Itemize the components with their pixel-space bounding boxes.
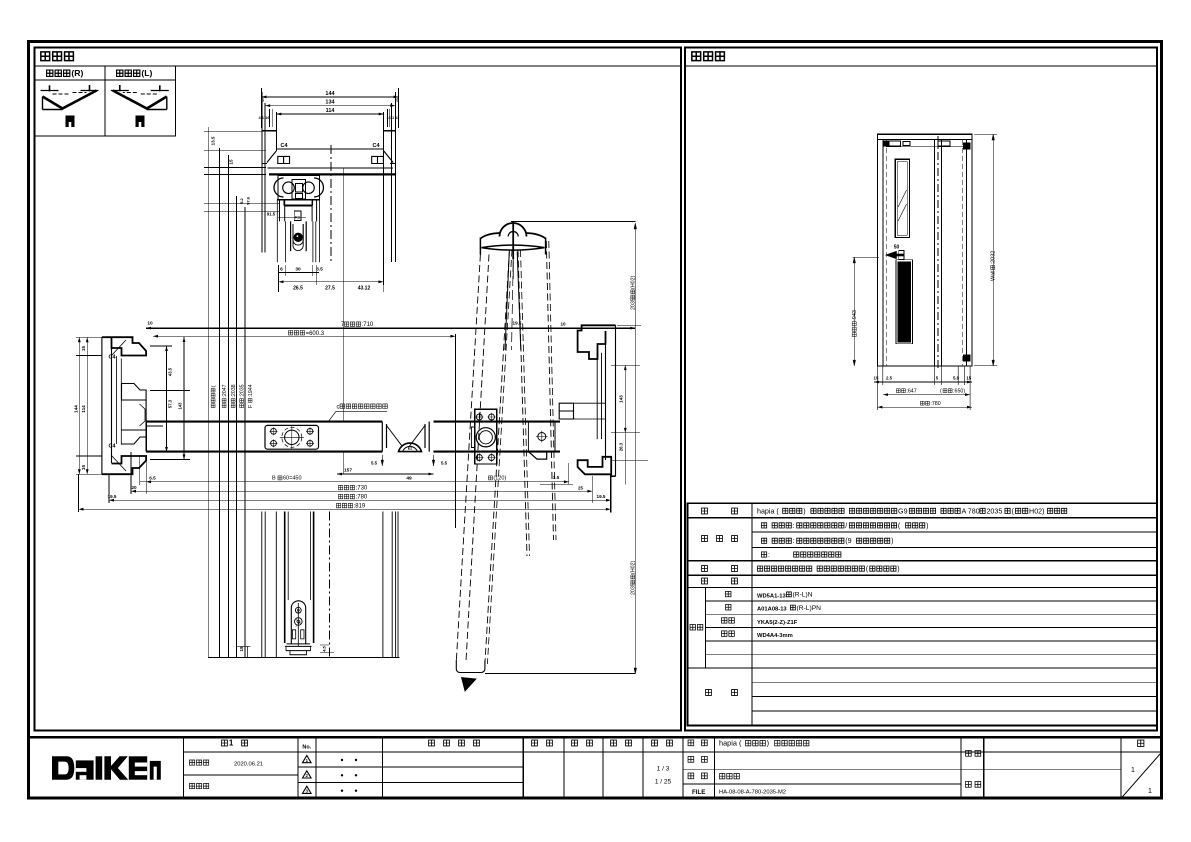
svg-text:c: c	[337, 403, 340, 410]
svg-text:A01A08-13: A01A08-13	[757, 607, 787, 613]
svg-text:15: 15	[874, 376, 879, 381]
svg-text:): )	[803, 507, 805, 515]
svg-text::1944: :1944	[248, 384, 254, 397]
svg-text:(: (	[940, 388, 942, 394]
svg-text:FILE: FILE	[692, 789, 705, 796]
svg-text:HA-08-08-A-780-2035-M2: HA-08-08-A-780-2035-M2	[719, 790, 786, 796]
svg-text:2.5: 2.5	[886, 376, 893, 381]
svg-text:): )	[926, 522, 928, 530]
svg-text::650): :650)	[953, 388, 965, 394]
svg-text:1 / 25: 1 / 25	[655, 779, 672, 786]
svg-text:49: 49	[406, 476, 412, 482]
svg-text::819: :819	[354, 504, 366, 510]
svg-text:2020.06.21: 2020.06.21	[234, 761, 263, 767]
svg-text:(9: (9	[845, 537, 851, 545]
svg-text:5.2: 5.2	[239, 197, 244, 203]
svg-text:1: 1	[1148, 788, 1152, 795]
svg-text:144: 144	[73, 405, 78, 413]
svg-text:50: 50	[894, 245, 900, 251]
svg-text::780: :780	[356, 495, 368, 501]
svg-text:B: B	[272, 476, 276, 482]
svg-text::2038: :2038	[231, 384, 237, 397]
svg-text:5.5: 5.5	[371, 461, 378, 466]
svg-text:26.3: 26.3	[619, 442, 624, 451]
svg-text:16 1 4: 16 1 4	[386, 115, 398, 120]
svg-text:(R-L)N: (R-L)N	[793, 592, 813, 599]
svg-text::710: :710	[362, 322, 374, 328]
svg-text:): )	[897, 565, 899, 573]
svg-text:144: 144	[325, 91, 335, 97]
svg-text:4.5: 4.5	[322, 645, 327, 651]
svg-text:G9: G9	[898, 507, 908, 515]
svg-text:C4: C4	[108, 355, 116, 361]
svg-text:3.5: 3.5	[316, 267, 323, 273]
svg-text:2035: 2035	[986, 507, 1002, 515]
svg-text:91.5: 91.5	[267, 212, 276, 217]
svg-text:10: 10	[560, 322, 566, 327]
svg-text:/: /	[845, 522, 847, 530]
svg-text:(H02): (H02)	[631, 560, 637, 573]
svg-text:57.3: 57.3	[168, 399, 173, 408]
svg-text::2047: :2047	[222, 384, 228, 397]
svg-text:C4: C4	[280, 143, 288, 149]
svg-text:15: 15	[229, 159, 234, 165]
svg-text:5.5: 5.5	[441, 461, 448, 466]
svg-text:2035: 2035	[631, 583, 637, 595]
svg-text:1 / 3: 1 / 3	[657, 766, 670, 773]
svg-text::647: :647	[906, 388, 916, 394]
svg-text:E2: E2	[408, 447, 412, 451]
svg-text:143: 143	[178, 402, 183, 410]
svg-text:134: 134	[325, 100, 335, 106]
svg-text:157: 157	[344, 468, 352, 474]
svg-text:57.8: 57.8	[246, 196, 251, 205]
svg-text:2035: 2035	[631, 298, 637, 310]
svg-text:): )	[767, 739, 769, 748]
svg-text:25: 25	[578, 486, 583, 491]
svg-text:26.5: 26.5	[293, 286, 303, 292]
svg-text:hapia (: hapia (	[757, 507, 779, 515]
svg-text:=600.3: =600.3	[306, 331, 325, 337]
svg-text:WD5A1-13: WD5A1-13	[757, 594, 786, 600]
svg-text:(R): (R)	[71, 68, 83, 78]
svg-text:(R-L)PN: (R-L)PN	[797, 605, 822, 612]
svg-text:43.12: 43.12	[358, 286, 371, 292]
svg-text:30: 30	[295, 267, 301, 273]
svg-text:27.5: 27.5	[325, 286, 335, 292]
svg-text:5.8: 5.8	[953, 376, 960, 381]
svg-text:1: 1	[1131, 767, 1135, 774]
svg-text:Wall: Wall	[991, 270, 997, 281]
svg-text::943: :943	[852, 310, 858, 321]
svg-text:114: 114	[326, 108, 336, 114]
svg-text:19.5: 19.5	[597, 494, 606, 499]
svg-text::: :	[768, 551, 770, 559]
svg-text::2032: :2032	[991, 251, 997, 265]
svg-text:YKA5(2-Z)-Z1F: YKA5(2-Z)-Z1F	[757, 620, 798, 626]
svg-text:15: 15	[81, 346, 86, 352]
svg-text:K1: K1	[295, 214, 301, 219]
svg-text:43.5: 43.5	[168, 367, 173, 376]
svg-text:(: (	[211, 385, 217, 387]
svg-text:No.: No.	[302, 745, 311, 751]
svg-text:6.5: 6.5	[149, 476, 156, 481]
svg-text:hapia (: hapia (	[719, 739, 742, 748]
svg-text:4 1 16: 4 1 16	[258, 115, 270, 120]
svg-text:): )	[891, 537, 893, 545]
svg-text:(L): (L)	[141, 68, 152, 78]
svg-text::2035: :2035	[239, 384, 245, 397]
svg-text:3.5: 3.5	[553, 475, 560, 480]
svg-text:1: 1	[229, 739, 234, 748]
svg-text:13.5: 13.5	[211, 136, 216, 145]
svg-text:(H02): (H02)	[631, 275, 637, 288]
svg-text:H02): H02)	[1029, 507, 1044, 515]
svg-text::730: :730	[356, 486, 368, 492]
svg-text:A 780: A 780	[961, 507, 979, 515]
svg-text::780: :780	[930, 401, 940, 407]
svg-text:20: 20	[131, 485, 137, 490]
svg-text:10: 10	[147, 321, 153, 327]
svg-text::: :	[793, 537, 795, 545]
svg-text:C4: C4	[372, 143, 380, 149]
svg-text::: :	[793, 522, 795, 530]
svg-text:15: 15	[966, 376, 971, 381]
svg-text:15: 15	[81, 465, 86, 471]
svg-text:143: 143	[619, 395, 624, 403]
svg-text:6: 6	[280, 267, 283, 273]
svg-text:19: 19	[239, 646, 244, 651]
svg-text:C4: C4	[108, 444, 116, 450]
svg-text:114: 114	[81, 405, 86, 413]
svg-text:60=450: 60=450	[283, 476, 302, 482]
svg-text:WD4A4-3mm: WD4A4-3mm	[757, 633, 793, 639]
